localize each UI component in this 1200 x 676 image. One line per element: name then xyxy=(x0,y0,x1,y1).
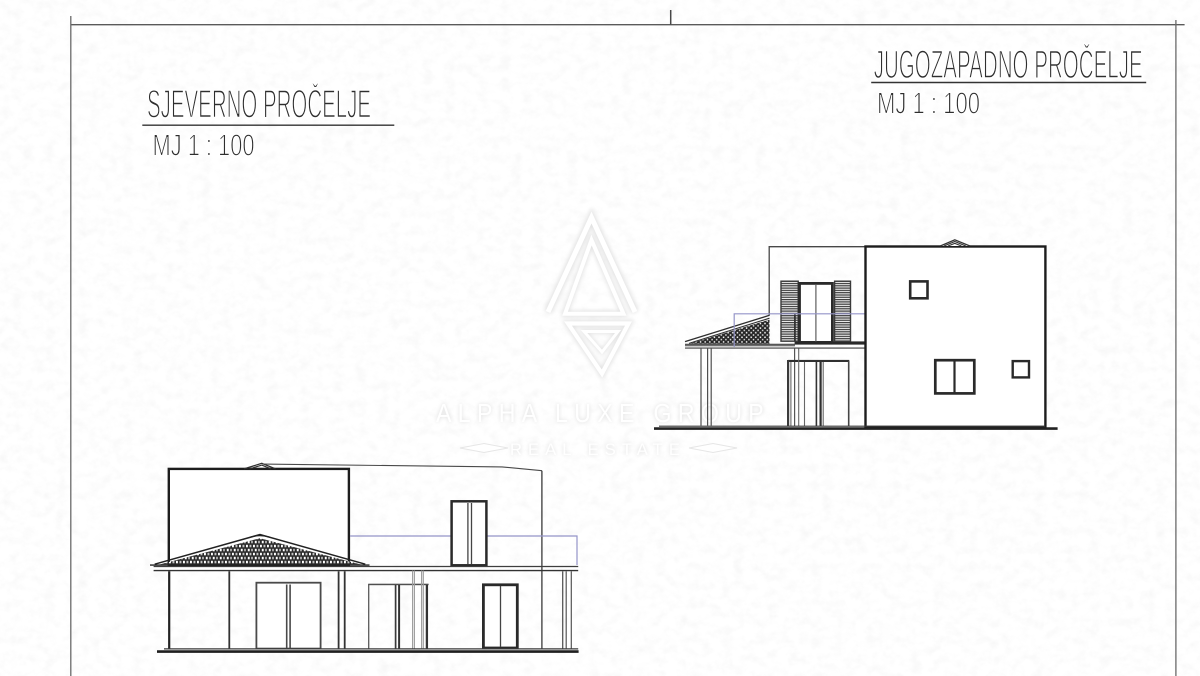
svg-text:SJEVERNO PROČELJE: SJEVERNO PROČELJE xyxy=(147,82,371,127)
svg-text:ALPHA LUXE GROUP: ALPHA LUXE GROUP xyxy=(436,400,770,428)
svg-text:JUGOZAPADNO PROČELJE: JUGOZAPADNO PROČELJE xyxy=(874,42,1143,87)
svg-text:MJ 1 : 100: MJ 1 : 100 xyxy=(153,128,255,163)
svg-text:MJ 1 : 100: MJ 1 : 100 xyxy=(877,85,980,120)
svg-text:REAL ESTATE: REAL ESTATE xyxy=(510,441,686,459)
